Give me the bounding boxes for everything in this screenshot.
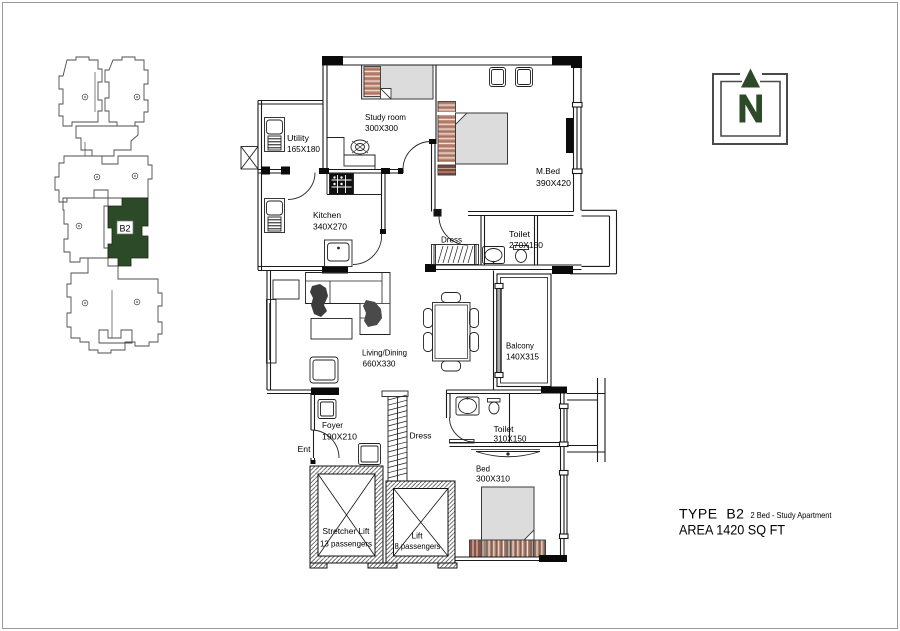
- svg-text:270X150: 270X150: [509, 240, 543, 250]
- svg-text:Toilet: Toilet: [509, 229, 531, 239]
- svg-text:Kitchen: Kitchen: [313, 210, 341, 220]
- svg-text:300X310: 300X310: [476, 474, 510, 484]
- svg-text:Ent: Ent: [298, 444, 312, 454]
- svg-text:390X420: 390X420: [536, 178, 571, 188]
- svg-text:300X300: 300X300: [365, 123, 398, 133]
- svg-text:TYPE B2: TYPE B2: [679, 506, 744, 522]
- svg-text:Dress: Dress: [410, 431, 432, 441]
- svg-text:Lift: Lift: [412, 531, 424, 541]
- svg-text:B2: B2: [119, 224, 130, 234]
- svg-text:Dress: Dress: [441, 235, 462, 245]
- svg-text:Utility: Utility: [287, 133, 310, 143]
- svg-text:Living/Dining: Living/Dining: [362, 348, 407, 358]
- svg-text:Toilet: Toilet: [494, 424, 515, 434]
- svg-text:2 Bed - Study Apartment: 2 Bed - Study Apartment: [751, 510, 833, 520]
- svg-text:Stretcher Lift: Stretcher Lift: [323, 526, 371, 536]
- svg-text:660X330: 660X330: [363, 359, 396, 369]
- svg-text:M.Bed: M.Bed: [536, 166, 560, 176]
- svg-text:Study room: Study room: [365, 112, 406, 122]
- svg-text:Balcony: Balcony: [506, 341, 535, 351]
- svg-text:190X210: 190X210: [322, 432, 357, 442]
- svg-text:AREA 1420 SQ FT: AREA 1420 SQ FT: [679, 522, 785, 538]
- svg-text:165X180: 165X180: [287, 144, 320, 154]
- svg-text:140X315: 140X315: [506, 352, 539, 362]
- svg-text:310X150: 310X150: [494, 434, 527, 444]
- svg-text:Bed: Bed: [476, 464, 490, 474]
- svg-text:8 passengers: 8 passengers: [395, 541, 441, 551]
- svg-text:13 passengers: 13 passengers: [320, 539, 372, 549]
- svg-text:Foyer: Foyer: [322, 420, 343, 430]
- svg-text:340X270: 340X270: [313, 222, 347, 232]
